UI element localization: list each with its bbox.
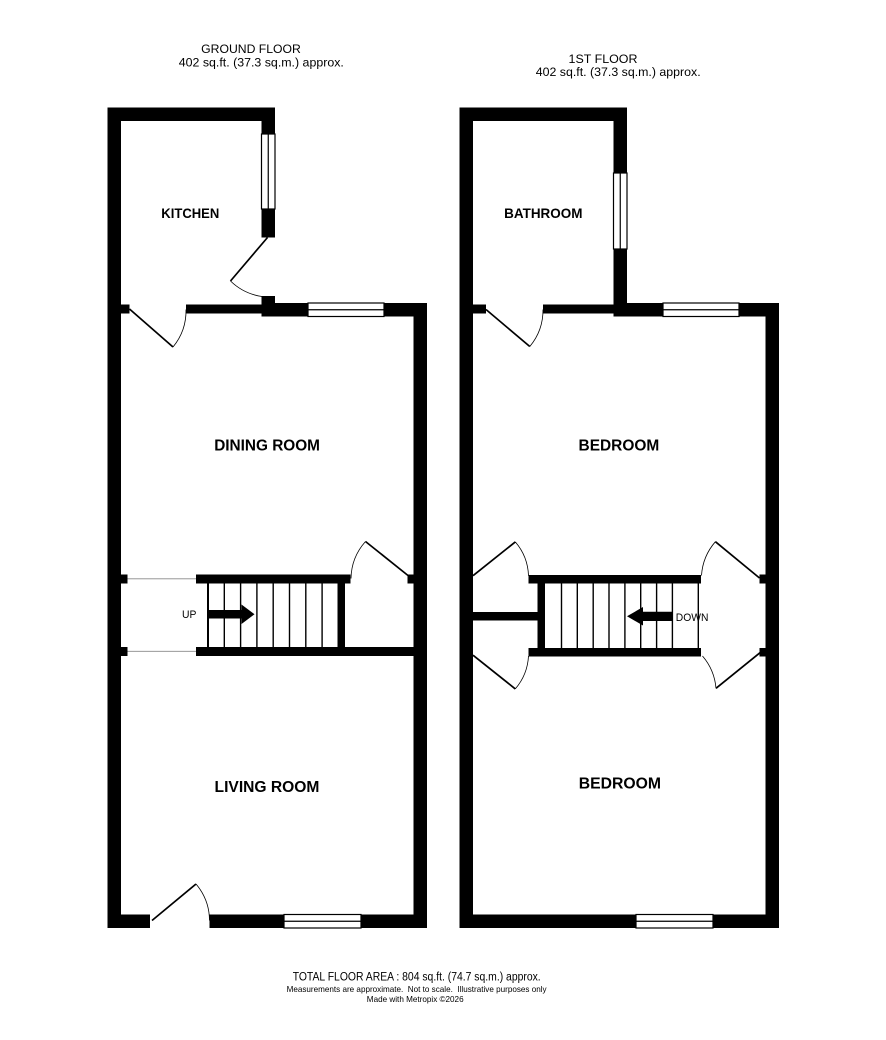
svg-text:Made with Metropix ©2026: Made with Metropix ©2026 bbox=[367, 994, 464, 1004]
svg-text:BEDROOM: BEDROOM bbox=[579, 776, 661, 793]
svg-text:Measurements are approximate.: Measurements are approximate. Not to sca… bbox=[287, 984, 548, 994]
svg-text:BATHROOM: BATHROOM bbox=[504, 205, 582, 221]
svg-text:DINING ROOM: DINING ROOM bbox=[214, 438, 320, 455]
svg-text:KITCHEN: KITCHEN bbox=[161, 205, 219, 221]
svg-text:DOWN: DOWN bbox=[676, 612, 709, 624]
svg-text:402 sq.ft. (37.3 sq.m.) approx: 402 sq.ft. (37.3 sq.m.) approx. bbox=[536, 65, 701, 79]
svg-text:GROUND FLOOR: GROUND FLOOR bbox=[201, 42, 301, 56]
svg-text:TOTAL FLOOR AREA : 804 sq.ft.: TOTAL FLOOR AREA : 804 sq.ft. (74.7 sq.m… bbox=[293, 971, 541, 983]
svg-text:BEDROOM: BEDROOM bbox=[579, 438, 660, 455]
svg-text:1ST FLOOR: 1ST FLOOR bbox=[569, 52, 638, 66]
svg-text:UP: UP bbox=[182, 609, 196, 621]
svg-text:402 sq.ft. (37.3 sq.m.) approx: 402 sq.ft. (37.3 sq.m.) approx. bbox=[179, 55, 344, 69]
svg-text:LIVING ROOM: LIVING ROOM bbox=[215, 779, 320, 796]
